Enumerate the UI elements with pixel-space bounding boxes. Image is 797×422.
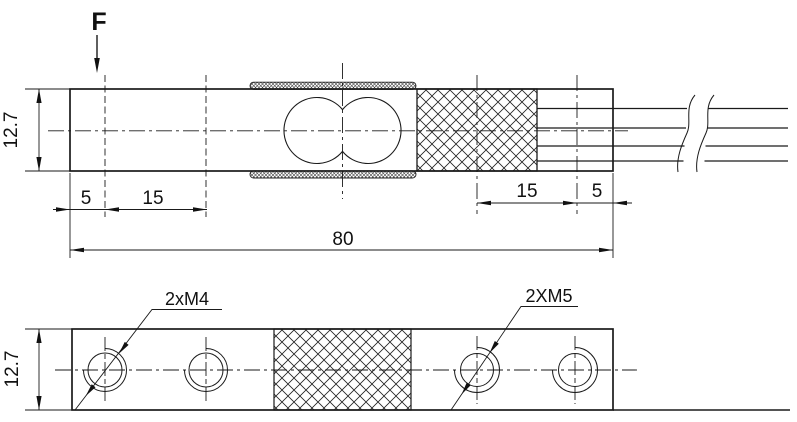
- dim-left-holes: [53, 207, 207, 212]
- cable-lines: [537, 109, 788, 162]
- dim-height-side: [25, 89, 70, 171]
- force-arrow: [94, 35, 100, 73]
- dim-text-total-length: 80: [332, 229, 353, 250]
- m5-leader: [451, 307, 578, 411]
- side-view: [25, 35, 788, 258]
- thread-label-m5: 2XM5: [525, 286, 572, 306]
- force-label: F: [91, 8, 106, 36]
- dim-right-holes: [477, 201, 632, 206]
- seal-strip-bottom: [250, 171, 416, 178]
- dim-text-right-5: 5: [592, 181, 603, 202]
- dim-text-height-bottom: 12.7: [2, 351, 23, 388]
- bottom-view: [25, 307, 790, 411]
- dim-text-left-5: 5: [81, 188, 92, 209]
- dim-text-left-15: 15: [142, 188, 163, 209]
- dim-text-right-15: 15: [516, 181, 537, 202]
- cable-gland-block-bottom: [274, 329, 411, 410]
- dim-height-bottom: [25, 329, 72, 410]
- m4-leader: [75, 310, 222, 411]
- load-cell-technical-drawing: F 12.7 5 15 15 5 80 2xM4 2XM5 12.7: [0, 0, 797, 422]
- drawing-canvas: F 12.7 5 15 15 5 80 2xM4 2XM5 12.7: [0, 0, 797, 422]
- dim-text-height-side: 12.7: [1, 112, 22, 149]
- thread-label-m4: 2xM4: [165, 289, 209, 309]
